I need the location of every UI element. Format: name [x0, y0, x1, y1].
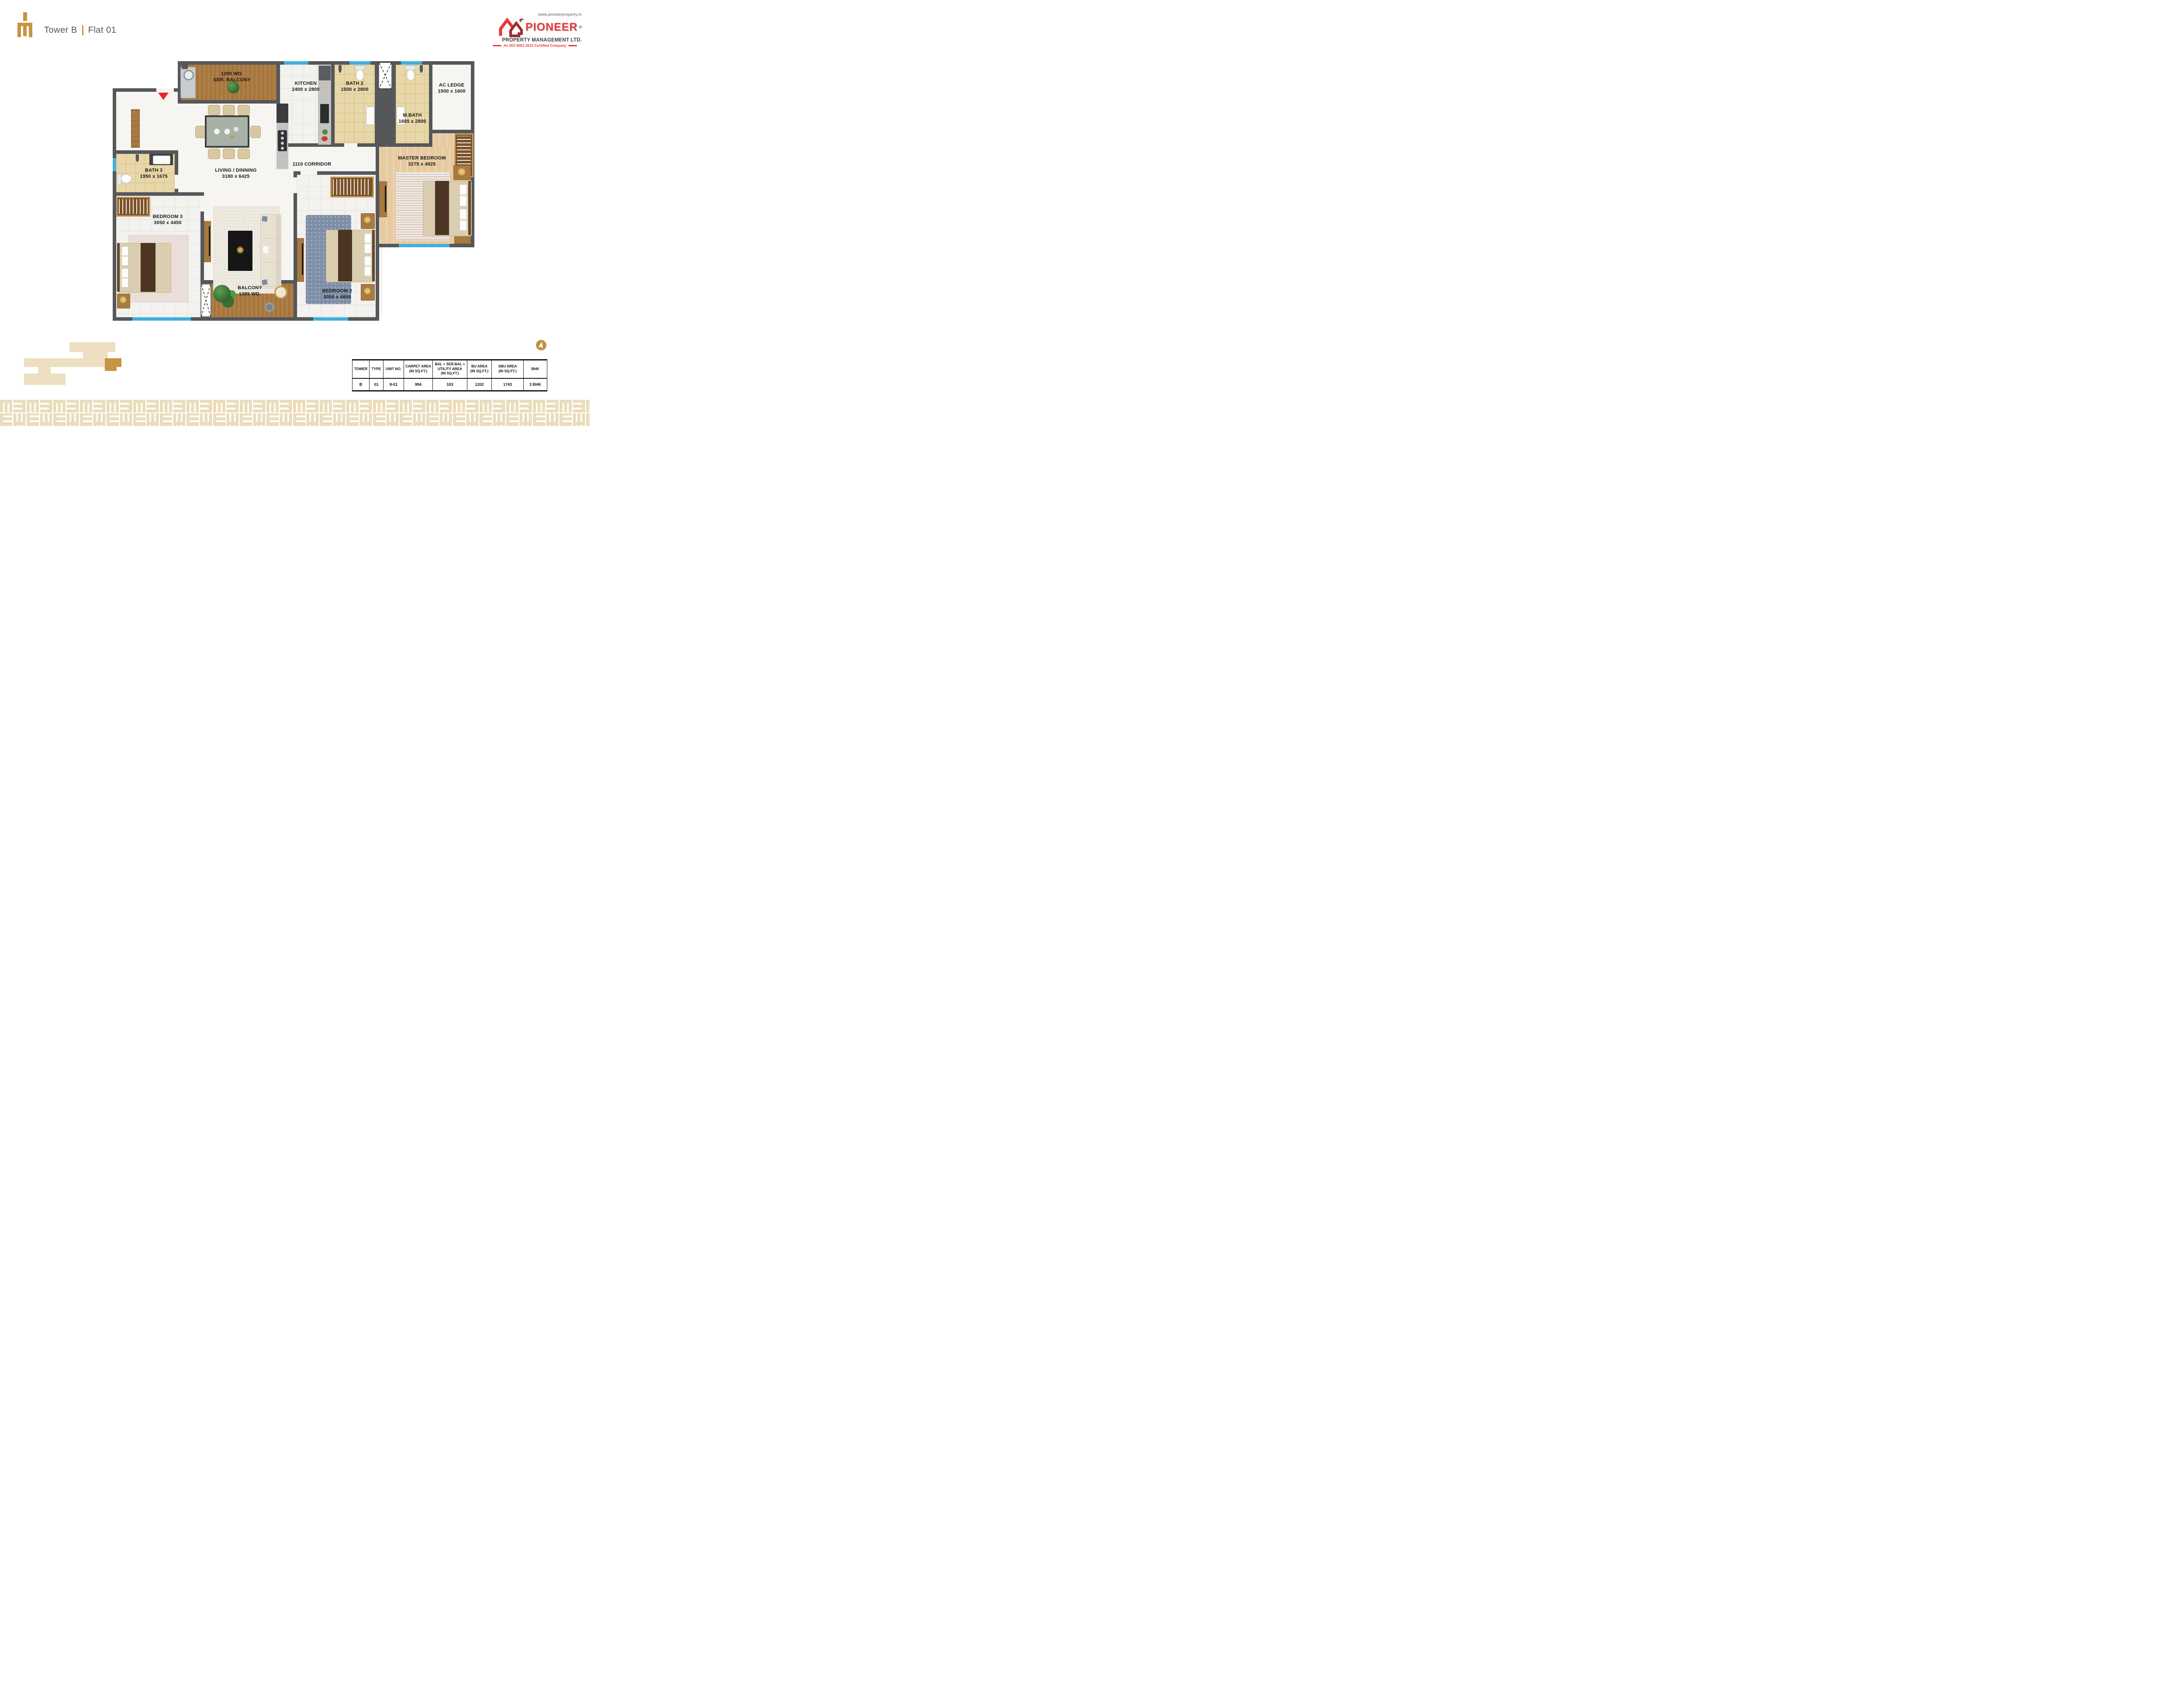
cell-type: 01: [370, 378, 384, 391]
gas-stove: [278, 130, 287, 151]
wall-bath3-bottom: [113, 192, 204, 196]
room-name: BATH 2: [341, 81, 368, 87]
room-name: 1110 CORRIDOR: [293, 162, 332, 168]
sink-bath2: [366, 107, 374, 125]
wall-living-bedroom3: [200, 211, 204, 280]
dining-chair: [208, 105, 220, 115]
wall-left: [113, 88, 116, 321]
wall-bedroom2-top-a: [294, 171, 301, 175]
keyplan-block: [38, 367, 51, 374]
room-dim: 3180 x 6425: [215, 174, 256, 180]
col-bu-area: BU AREA (IN SQ.FT.): [467, 360, 492, 379]
room-dim: 1665 x 2800: [398, 119, 426, 125]
room-name: BALCONY: [238, 285, 262, 291]
round-table-balcony: [265, 302, 274, 312]
tv-master: [385, 186, 386, 212]
area-statement-table: TOWER TYPE UNIT NO. CARPET AREA (IN SQ.F…: [352, 359, 547, 391]
entrance-arrow-icon: [158, 93, 169, 100]
room-dim: 1385 WD.: [238, 291, 262, 298]
label-service-balcony: 1200 WD. SER. BALCONY: [213, 71, 251, 83]
headboard-bedroom2: [372, 230, 375, 281]
window-master-bedroom: [399, 244, 449, 247]
room-dim: 1950 x 1675: [140, 174, 167, 180]
cell-bhk: 3 BHK: [524, 378, 547, 391]
brochure-page: Tower B Flat 01 www.pioneerproperty.in P…: [0, 0, 590, 426]
cell-sbu-area: 1743: [492, 378, 524, 391]
wall-bath3-right-b: [175, 189, 178, 192]
pillows-bedroom2: [364, 233, 371, 253]
col-bhk: BHK: [524, 360, 547, 379]
shower-icon-bath3: [136, 156, 138, 162]
dining-chair: [223, 149, 235, 159]
north-arrow-icon: [536, 340, 546, 350]
window-bath2: [349, 61, 370, 65]
wall-bedroom2-top-b: [317, 171, 379, 175]
detergent-box: [182, 65, 188, 69]
bed-runner-bedroom2: [338, 230, 352, 281]
sink-bath3: [153, 156, 170, 164]
pillows-bedroom3: [121, 246, 128, 266]
headboard-bedroom3: [117, 243, 120, 292]
label-mbath: M.BATH 1665 x 2800: [398, 113, 426, 125]
room-name: MASTER BEDROOM: [398, 156, 446, 162]
pillows-master: [460, 209, 467, 231]
label-ac-ledge: AC LEDGE 1500 x 1600: [438, 83, 465, 94]
window-bath3: [113, 158, 116, 171]
wall-mbath-left: [392, 61, 396, 147]
decor-mirror: [458, 168, 466, 176]
dining-chair: [238, 149, 250, 159]
duct-shaft-top: [378, 62, 392, 89]
label-balcony: BALCONY 1385 WD.: [238, 285, 262, 297]
plant-balcony: [213, 285, 231, 302]
wall-bath2-right: [375, 61, 378, 147]
label-master-bedroom: MASTER BEDROOM 3275 x 4825: [398, 156, 446, 167]
wall-bath3-right-a: [175, 150, 178, 175]
sofa-pillow: [262, 279, 268, 285]
foyer-cabinet: [131, 109, 140, 148]
headboard-master: [468, 181, 471, 235]
table-data-row: B 01 8-01 994 103 1202 1743 3 BHK: [352, 378, 547, 391]
cell-carpet-area: 994: [404, 378, 433, 391]
cell-unit-no: 8-01: [384, 378, 404, 391]
dining-chair: [195, 126, 206, 138]
plant-service-balcony: [227, 81, 239, 94]
vegetable-bowl: [322, 129, 328, 135]
room-dim: 3050 x 4850: [322, 294, 352, 301]
room-name: KITCHEN: [292, 81, 319, 87]
tv-bedroom2: [302, 243, 303, 275]
keyplan-block: [69, 342, 115, 352]
keyplan-block: [24, 374, 66, 385]
outside-top-left: [112, 60, 178, 88]
pillows-bedroom3: [121, 268, 128, 287]
room-name: M.BATH: [398, 113, 426, 119]
cell-tower: B: [352, 378, 370, 391]
window-mbath: [401, 61, 422, 65]
shower-icon-mbath: [420, 67, 422, 73]
toilet-mbath: [407, 69, 415, 80]
duct-shaft-balcony: [200, 284, 211, 317]
sofa-pillow: [262, 216, 268, 222]
keyplan-block: [24, 358, 105, 367]
col-unit-no: UNIT NO.: [384, 360, 404, 379]
col-carpet-area: CARPET AREA (IN SQ.FT.): [404, 360, 433, 379]
washing-machine-lid: [183, 70, 194, 80]
kitchen-platform-dark: [276, 104, 288, 123]
tv-living: [209, 226, 210, 256]
north-compass-icon: [536, 340, 546, 350]
wardrobe-bedroom2: [330, 177, 374, 197]
room-dim: SER. BALCONY: [213, 77, 251, 83]
kitchen-sink: [320, 104, 329, 123]
label-living-dining: LIVING / DINNING 3180 x 6425: [215, 168, 256, 180]
window-kitchen: [284, 61, 308, 65]
wall-mbath-right: [429, 61, 432, 147]
room-name: LIVING / DINNING: [215, 168, 256, 174]
wall-shaft-column: [378, 88, 392, 147]
keyplan-highlight-flat: [105, 358, 121, 367]
pillows-master: [460, 184, 467, 206]
room-name: AC LEDGE: [438, 83, 465, 89]
table-header-row: TOWER TYPE UNIT NO. CARPET AREA (IN SQ.F…: [352, 360, 547, 379]
wall-master-top-b: [396, 143, 432, 147]
dining-chair: [208, 149, 220, 159]
room-dim: 1500 x 1600: [438, 89, 465, 95]
room-dim: 2400 x 2800: [292, 87, 319, 93]
wall-living-bedroom2: [294, 193, 297, 317]
wall-living-bedroom2-stub: [294, 175, 297, 177]
round-chair-balcony: [274, 286, 287, 299]
window-bedroom2: [313, 317, 348, 321]
room-name: BEDROOM 2: [322, 288, 352, 294]
room-dim: 1500 x 2800: [341, 87, 368, 93]
label-bath3: BATH 3 1950 x 1675: [140, 168, 167, 180]
dining-chair: [223, 105, 235, 115]
dining-chair: [238, 105, 250, 115]
wall-entry-top-a: [113, 88, 156, 92]
col-bal-utility-area: BAL + SER.BAL + UTILITY AREA (IN SQ.FT.): [433, 360, 467, 379]
room-name: BEDROOM 3: [153, 214, 183, 220]
label-corridor: 1110 CORRIDOR: [293, 162, 332, 168]
pillows-bedroom2: [364, 256, 371, 276]
cell-bal-utility-area: 103: [433, 378, 467, 391]
col-type: TYPE: [370, 360, 384, 379]
window-bedroom3: [132, 317, 191, 321]
wall-serbalcony-bottom: [178, 100, 280, 104]
rug-medallion: [236, 246, 244, 254]
shower-icon-bath2: [339, 67, 341, 73]
floor-bath2: [335, 65, 375, 143]
wall-bath3-top: [113, 150, 178, 154]
wall-kitchen-left: [276, 61, 280, 104]
room-name: 1200 WD.: [213, 71, 251, 77]
sofa-throw: [263, 246, 269, 254]
cell-bu-area: 1202: [467, 378, 492, 391]
outside-bottom-right: [383, 247, 475, 322]
toilet-bath2: [356, 69, 364, 80]
wall-kitchen-bath2: [331, 61, 335, 147]
dresser-master: [454, 236, 471, 244]
hanger-ticks: [333, 179, 371, 195]
decor-plate: [120, 296, 127, 303]
room-dim: 3050 x 4450: [153, 220, 183, 226]
keyplan-highlight-flat: [105, 367, 117, 371]
wall-acledge-bottom: [429, 130, 474, 133]
bed-runner-bedroom3: [141, 243, 156, 292]
room-dim: 3275 x 4825: [398, 162, 446, 168]
col-tower: TOWER: [352, 360, 370, 379]
footer-greek-key-pattern: [0, 400, 590, 426]
wardrobe-bedroom3: [116, 197, 150, 217]
label-bath2: BATH 2 1500 x 2800: [341, 81, 368, 93]
bed-runner-master: [435, 181, 449, 235]
dining-table-top: [207, 117, 248, 146]
label-bedroom2: BEDROOM 2 3050 x 4850: [322, 288, 352, 300]
col-sbu-area: SBU AREA (IN SQ.FT.): [492, 360, 524, 379]
decor-plate: [364, 216, 371, 223]
kitchen-cabinet: [319, 66, 331, 80]
toilet-bath3: [121, 174, 131, 183]
room-name: BATH 3: [140, 168, 167, 174]
sofa-back: [276, 215, 280, 287]
hanger-ticks: [119, 199, 148, 214]
label-bedroom3: BEDROOM 3 3050 x 4450: [153, 214, 183, 226]
decor-plate: [364, 287, 371, 294]
label-kitchen: KITCHEN 2400 x 2800: [292, 81, 319, 93]
dining-chair: [250, 126, 261, 138]
red-pan: [321, 136, 328, 141]
